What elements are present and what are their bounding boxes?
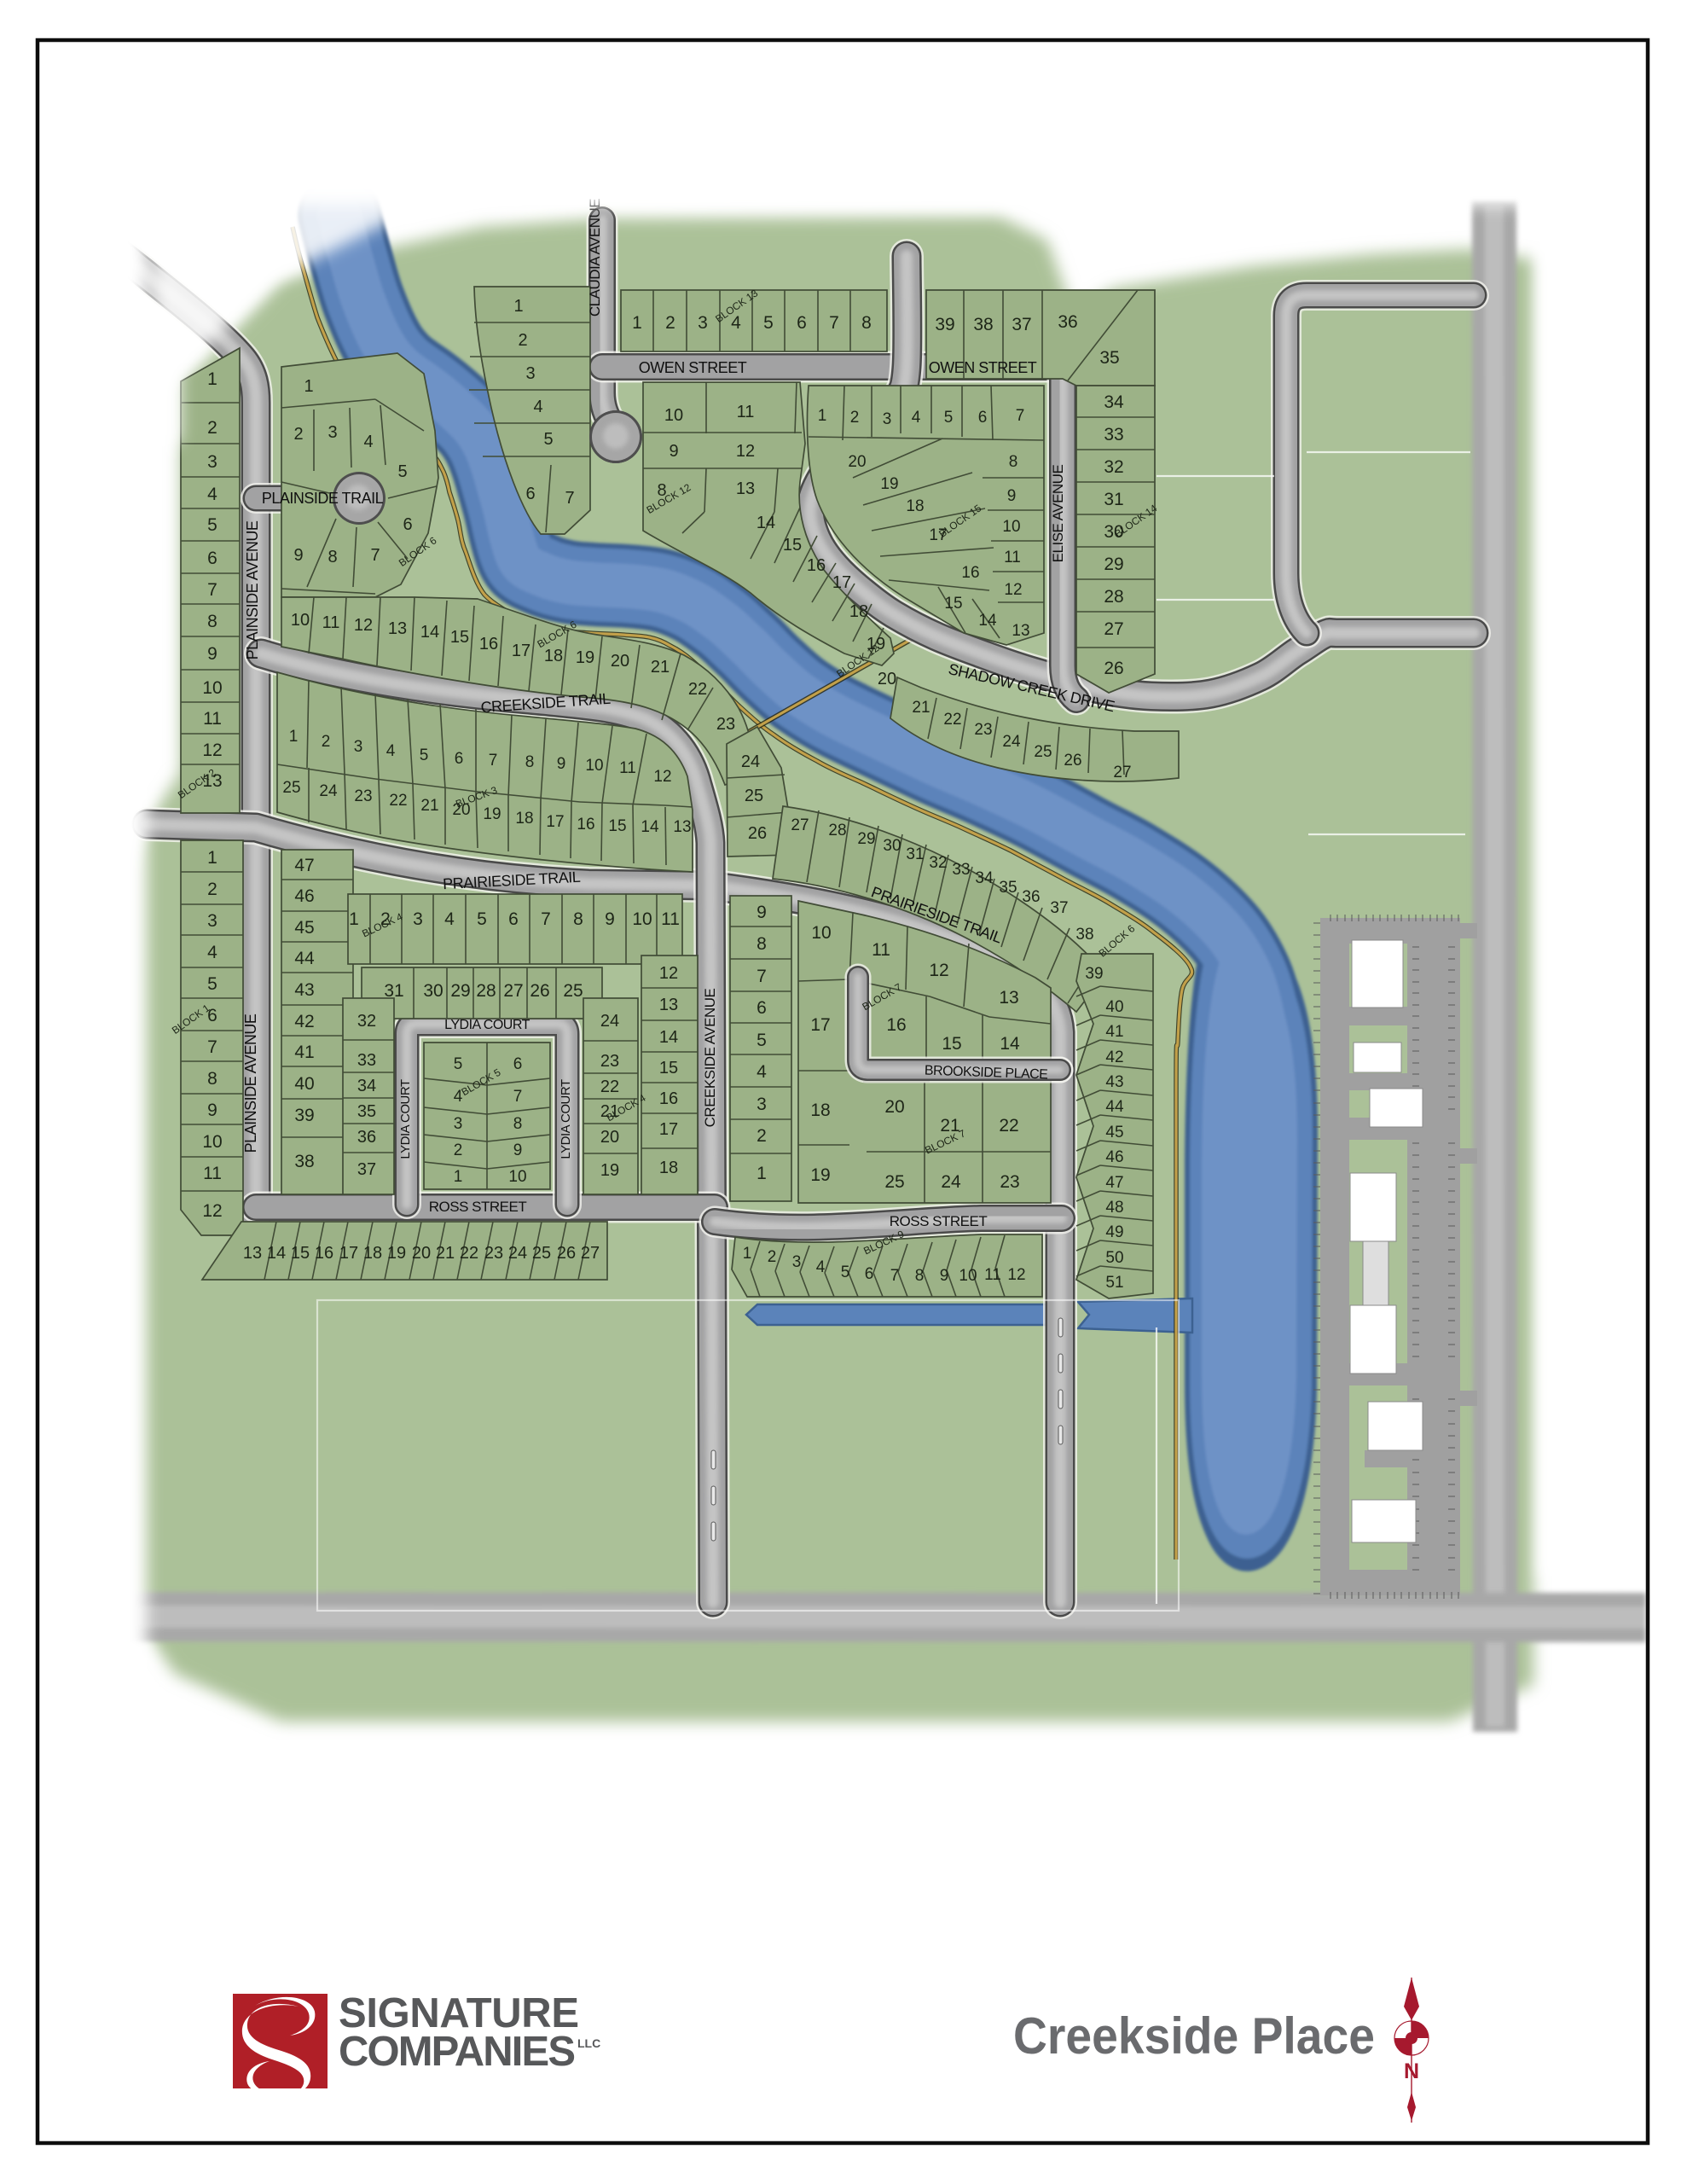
svg-text:1: 1 — [743, 1245, 752, 1263]
svg-text:6: 6 — [513, 1055, 523, 1073]
svg-text:19: 19 — [483, 805, 501, 823]
svg-text:6: 6 — [508, 909, 519, 929]
svg-text:5: 5 — [420, 746, 429, 764]
svg-text:18: 18 — [363, 1244, 382, 1263]
svg-text:11: 11 — [872, 940, 890, 960]
svg-text:2: 2 — [850, 409, 860, 427]
svg-text:35: 35 — [357, 1102, 376, 1121]
svg-text:10: 10 — [202, 1132, 222, 1152]
svg-text:40: 40 — [1105, 998, 1123, 1016]
svg-text:15: 15 — [659, 1059, 678, 1077]
svg-text:17: 17 — [512, 642, 530, 660]
svg-text:27: 27 — [503, 981, 523, 1001]
svg-text:10: 10 — [508, 1168, 526, 1186]
svg-text:10: 10 — [632, 909, 652, 929]
svg-text:7: 7 — [370, 546, 380, 565]
svg-text:14: 14 — [1000, 1034, 1020, 1054]
svg-text:39: 39 — [1085, 965, 1103, 983]
svg-text:8: 8 — [328, 548, 337, 566]
svg-text:1: 1 — [454, 1168, 463, 1186]
svg-text:12: 12 — [736, 442, 755, 461]
svg-text:3: 3 — [454, 1115, 463, 1133]
svg-text:47: 47 — [1105, 1174, 1123, 1192]
svg-text:12: 12 — [202, 741, 222, 760]
svg-text:1: 1 — [349, 909, 359, 929]
svg-text:22: 22 — [460, 1244, 478, 1263]
svg-text:27: 27 — [1113, 764, 1131, 781]
svg-text:9: 9 — [293, 546, 303, 565]
svg-text:4: 4 — [207, 485, 217, 504]
svg-text:11: 11 — [322, 613, 340, 632]
svg-text:19: 19 — [600, 1161, 619, 1180]
svg-text:44: 44 — [294, 949, 315, 968]
svg-text:3: 3 — [413, 909, 423, 929]
svg-text:10: 10 — [959, 1267, 977, 1285]
svg-text:25: 25 — [1034, 743, 1052, 761]
svg-text:7: 7 — [829, 313, 839, 333]
svg-text:39: 39 — [935, 315, 954, 334]
svg-text:17: 17 — [832, 573, 851, 592]
svg-text:16: 16 — [479, 635, 498, 653]
svg-text:6: 6 — [525, 485, 535, 503]
svg-text:35: 35 — [999, 879, 1017, 897]
svg-text:11: 11 — [203, 1164, 222, 1183]
svg-text:14: 14 — [757, 514, 775, 532]
svg-text:ELISE AVENUE: ELISE AVENUE — [1050, 465, 1066, 563]
svg-text:19: 19 — [810, 1165, 830, 1185]
svg-text:10: 10 — [664, 406, 683, 425]
svg-text:4: 4 — [533, 398, 542, 416]
svg-text:41: 41 — [294, 1043, 314, 1062]
svg-text:1: 1 — [304, 377, 313, 396]
svg-text:31: 31 — [1104, 490, 1123, 509]
svg-text:PLAINSIDE AVENUE: PLAINSIDE AVENUE — [244, 520, 261, 659]
svg-text:4: 4 — [386, 742, 396, 760]
svg-text:14: 14 — [978, 612, 997, 630]
svg-text:37: 37 — [1012, 315, 1031, 334]
svg-text:15: 15 — [942, 1034, 961, 1054]
svg-text:3: 3 — [207, 911, 217, 931]
svg-text:37: 37 — [1050, 899, 1068, 917]
svg-text:9: 9 — [557, 755, 566, 773]
svg-text:13: 13 — [736, 479, 755, 498]
svg-text:1: 1 — [632, 313, 642, 333]
svg-text:2: 2 — [293, 425, 303, 444]
svg-text:2: 2 — [207, 418, 217, 438]
svg-text:7: 7 — [757, 967, 767, 986]
svg-text:45: 45 — [294, 918, 314, 938]
svg-text:36: 36 — [1058, 312, 1077, 332]
svg-text:46: 46 — [1105, 1148, 1123, 1166]
svg-text:34: 34 — [1104, 392, 1124, 412]
svg-text:10: 10 — [811, 923, 831, 943]
svg-text:2: 2 — [518, 331, 527, 350]
svg-text:29: 29 — [450, 981, 470, 1001]
svg-text:12: 12 — [202, 1201, 222, 1221]
svg-text:2: 2 — [454, 1141, 463, 1159]
svg-text:20: 20 — [412, 1244, 431, 1263]
svg-text:23: 23 — [1000, 1172, 1019, 1192]
svg-text:23: 23 — [484, 1244, 503, 1263]
svg-text:1: 1 — [289, 728, 299, 746]
svg-text:12: 12 — [659, 964, 678, 983]
svg-text:38: 38 — [294, 1152, 314, 1171]
svg-text:32: 32 — [929, 854, 947, 872]
svg-text:25: 25 — [563, 981, 583, 1001]
svg-text:17: 17 — [810, 1015, 830, 1035]
svg-text:6: 6 — [797, 313, 807, 333]
svg-text:25: 25 — [532, 1244, 551, 1263]
svg-text:20: 20 — [884, 1097, 904, 1117]
svg-text:19: 19 — [387, 1244, 406, 1263]
svg-text:29: 29 — [1104, 555, 1123, 574]
svg-text:8: 8 — [861, 313, 872, 333]
svg-text:9: 9 — [940, 1267, 949, 1285]
svg-text:1: 1 — [757, 1164, 767, 1183]
svg-text:18: 18 — [849, 602, 868, 621]
svg-text:19: 19 — [576, 648, 594, 667]
svg-text:45: 45 — [1105, 1124, 1123, 1141]
svg-text:27: 27 — [791, 816, 809, 834]
svg-text:35: 35 — [1099, 348, 1119, 368]
svg-text:9: 9 — [669, 442, 678, 461]
svg-text:2: 2 — [665, 313, 675, 333]
svg-text:49: 49 — [1105, 1223, 1123, 1241]
svg-text:26: 26 — [748, 824, 767, 843]
svg-text:51: 51 — [1105, 1274, 1123, 1292]
svg-text:LYDIA COURT: LYDIA COURT — [444, 1018, 530, 1032]
svg-text:18: 18 — [515, 810, 533, 828]
svg-text:9: 9 — [207, 644, 217, 664]
svg-text:6: 6 — [207, 549, 217, 568]
svg-text:8: 8 — [513, 1115, 523, 1133]
svg-text:21: 21 — [436, 1244, 455, 1263]
svg-text:16: 16 — [807, 556, 826, 575]
svg-text:8: 8 — [757, 934, 767, 954]
svg-text:PLAINSIDE AVENUE: PLAINSIDE AVENUE — [242, 1014, 259, 1153]
svg-text:3: 3 — [698, 313, 708, 333]
svg-text:11: 11 — [619, 759, 636, 777]
svg-text:42: 42 — [1105, 1048, 1123, 1066]
svg-text:20: 20 — [600, 1128, 619, 1147]
svg-text:5: 5 — [763, 313, 774, 333]
svg-text:30: 30 — [883, 837, 901, 855]
svg-text:24: 24 — [319, 782, 338, 800]
svg-text:10: 10 — [585, 757, 603, 775]
svg-text:36: 36 — [357, 1128, 376, 1147]
svg-text:PLAINSIDE TRAIL: PLAINSIDE TRAIL — [262, 490, 384, 507]
svg-text:28: 28 — [1104, 587, 1123, 607]
svg-text:19: 19 — [880, 475, 898, 493]
svg-text:21: 21 — [420, 797, 438, 815]
svg-text:9: 9 — [605, 909, 615, 929]
svg-text:24: 24 — [600, 1012, 619, 1031]
svg-text:10: 10 — [291, 611, 310, 630]
svg-text:7: 7 — [1016, 407, 1025, 425]
svg-text:2: 2 — [757, 1126, 767, 1146]
svg-text:15: 15 — [783, 536, 802, 555]
svg-text:3: 3 — [757, 1095, 767, 1114]
svg-text:CREEKSIDE AVENUE: CREEKSIDE AVENUE — [702, 989, 718, 1128]
svg-text:32: 32 — [1104, 457, 1123, 477]
svg-text:28: 28 — [476, 981, 496, 1001]
svg-text:47: 47 — [294, 856, 314, 875]
svg-text:4: 4 — [444, 909, 455, 929]
svg-text:16: 16 — [315, 1244, 333, 1263]
svg-text:16: 16 — [886, 1015, 906, 1035]
svg-text:22: 22 — [688, 680, 707, 699]
svg-text:15: 15 — [450, 628, 469, 647]
svg-text:5: 5 — [757, 1031, 767, 1050]
svg-text:26: 26 — [557, 1244, 576, 1263]
svg-text:22: 22 — [943, 711, 961, 729]
svg-text:13: 13 — [673, 818, 691, 836]
svg-text:9: 9 — [757, 903, 767, 922]
svg-text:38: 38 — [1075, 926, 1093, 944]
svg-text:33: 33 — [357, 1051, 376, 1070]
svg-text:N: N — [1404, 2059, 1419, 2083]
svg-text:10: 10 — [202, 678, 222, 698]
svg-text:40: 40 — [294, 1074, 314, 1094]
svg-text:8: 8 — [1009, 453, 1018, 471]
svg-text:10: 10 — [1002, 518, 1020, 536]
svg-text:5: 5 — [454, 1055, 463, 1073]
svg-text:20: 20 — [848, 453, 866, 471]
svg-text:9: 9 — [1007, 487, 1017, 505]
svg-text:14: 14 — [420, 623, 439, 642]
svg-text:14: 14 — [641, 818, 659, 836]
svg-text:38: 38 — [973, 315, 993, 334]
svg-text:16: 16 — [659, 1089, 678, 1108]
svg-text:ROSS STREET: ROSS STREET — [429, 1199, 527, 1215]
svg-text:5: 5 — [397, 462, 407, 481]
svg-text:26: 26 — [530, 981, 549, 1001]
svg-text:7: 7 — [541, 909, 551, 929]
svg-text:4: 4 — [816, 1258, 826, 1276]
svg-text:3: 3 — [525, 364, 535, 383]
svg-text:1: 1 — [513, 297, 523, 316]
svg-text:COMPANIES: COMPANIES — [339, 2029, 575, 2075]
svg-text:23: 23 — [600, 1052, 619, 1071]
svg-text:5: 5 — [543, 430, 553, 449]
svg-text:27: 27 — [581, 1244, 600, 1263]
svg-text:25: 25 — [884, 1172, 904, 1192]
svg-text:12: 12 — [1007, 1266, 1025, 1284]
svg-text:23: 23 — [974, 721, 992, 739]
svg-text:6: 6 — [757, 998, 767, 1018]
svg-text:7: 7 — [207, 1037, 217, 1057]
svg-text:7: 7 — [489, 752, 498, 770]
svg-text:3: 3 — [883, 410, 892, 428]
svg-text:20: 20 — [878, 670, 896, 688]
svg-text:11: 11 — [737, 403, 755, 421]
svg-text:39: 39 — [294, 1106, 314, 1125]
svg-text:43: 43 — [294, 980, 314, 1000]
svg-text:22: 22 — [389, 792, 407, 810]
svg-text:18: 18 — [906, 497, 924, 515]
svg-text:32: 32 — [357, 1012, 376, 1031]
svg-text:1: 1 — [207, 848, 217, 868]
svg-text:OWEN STREET: OWEN STREET — [929, 359, 1037, 376]
svg-text:9: 9 — [207, 1101, 217, 1120]
svg-text:13: 13 — [999, 988, 1018, 1008]
svg-text:6: 6 — [865, 1265, 874, 1283]
svg-text:7: 7 — [513, 1088, 523, 1106]
svg-text:1: 1 — [207, 369, 217, 389]
svg-text:OWEN STREET: OWEN STREET — [639, 359, 747, 376]
svg-text:8: 8 — [525, 753, 535, 771]
svg-text:24: 24 — [1002, 733, 1021, 751]
svg-text:8: 8 — [915, 1267, 925, 1285]
svg-text:37: 37 — [357, 1160, 376, 1179]
svg-text:26: 26 — [1104, 659, 1123, 678]
svg-text:26: 26 — [1064, 752, 1081, 770]
svg-text:15: 15 — [944, 595, 962, 613]
svg-text:11: 11 — [203, 709, 222, 729]
svg-text:4: 4 — [207, 943, 217, 962]
svg-text:50: 50 — [1105, 1249, 1123, 1267]
svg-text:7: 7 — [207, 580, 217, 600]
svg-text:1: 1 — [818, 407, 827, 425]
svg-text:3: 3 — [792, 1253, 802, 1271]
svg-text:5: 5 — [841, 1263, 850, 1281]
svg-text:CLAUDIA AVENUE: CLAUDIA AVENUE — [587, 199, 603, 317]
svg-text:12: 12 — [1004, 581, 1022, 599]
svg-text:23: 23 — [354, 787, 372, 805]
svg-text:6: 6 — [455, 750, 464, 768]
svg-text:3: 3 — [328, 423, 337, 442]
svg-text:30: 30 — [423, 981, 443, 1001]
svg-text:28: 28 — [828, 822, 846, 839]
svg-text:24: 24 — [508, 1244, 527, 1263]
svg-text:13: 13 — [243, 1244, 262, 1263]
svg-text:44: 44 — [1105, 1098, 1124, 1116]
svg-text:6: 6 — [978, 409, 988, 427]
svg-text:24: 24 — [741, 752, 760, 771]
svg-text:20: 20 — [611, 652, 629, 671]
svg-text:8: 8 — [207, 1069, 217, 1089]
svg-text:36: 36 — [1022, 888, 1040, 906]
svg-text:22: 22 — [600, 1077, 619, 1096]
svg-text:3: 3 — [354, 738, 363, 756]
svg-text:11: 11 — [661, 909, 680, 929]
svg-text:12: 12 — [653, 768, 671, 786]
svg-text:2: 2 — [322, 733, 331, 751]
svg-text:23: 23 — [716, 715, 735, 734]
svg-text:18: 18 — [810, 1101, 830, 1120]
svg-text:7: 7 — [565, 489, 574, 508]
svg-text:6: 6 — [403, 515, 412, 534]
svg-text:12: 12 — [929, 961, 948, 980]
svg-text:33: 33 — [1104, 425, 1123, 444]
svg-text:13: 13 — [388, 619, 407, 638]
svg-text:8: 8 — [573, 909, 583, 929]
svg-text:48: 48 — [1105, 1199, 1123, 1217]
svg-text:22: 22 — [999, 1116, 1018, 1136]
svg-text:33: 33 — [952, 861, 970, 879]
svg-text:LLC: LLC — [577, 2036, 600, 2050]
svg-text:17: 17 — [546, 813, 564, 831]
svg-text:15: 15 — [291, 1244, 310, 1263]
svg-text:11: 11 — [1004, 549, 1021, 566]
svg-text:13: 13 — [659, 996, 678, 1014]
svg-text:46: 46 — [294, 886, 314, 906]
svg-text:Creekside Place: Creekside Place — [1013, 2007, 1375, 2065]
svg-text:12: 12 — [354, 616, 373, 635]
svg-text:27: 27 — [1104, 619, 1123, 639]
svg-text:43: 43 — [1105, 1073, 1123, 1091]
svg-text:42: 42 — [294, 1012, 314, 1031]
svg-text:31: 31 — [906, 845, 924, 863]
svg-text:21: 21 — [912, 699, 930, 717]
svg-text:18: 18 — [659, 1159, 678, 1177]
svg-text:41: 41 — [1105, 1023, 1123, 1041]
svg-text:5: 5 — [477, 909, 487, 929]
svg-text:2: 2 — [207, 880, 217, 899]
svg-text:11: 11 — [984, 1266, 1001, 1284]
svg-text:8: 8 — [207, 612, 217, 631]
svg-text:3: 3 — [207, 452, 217, 472]
svg-text:4: 4 — [363, 433, 373, 451]
svg-text:17: 17 — [659, 1120, 678, 1139]
svg-text:29: 29 — [857, 830, 875, 848]
svg-text:16: 16 — [961, 564, 979, 582]
svg-text:15: 15 — [608, 817, 626, 835]
svg-text:34: 34 — [975, 869, 994, 887]
svg-text:25: 25 — [745, 787, 763, 805]
svg-text:4: 4 — [757, 1062, 767, 1082]
svg-text:14: 14 — [659, 1028, 678, 1047]
svg-text:5: 5 — [207, 974, 217, 994]
svg-text:34: 34 — [357, 1077, 376, 1095]
svg-text:18: 18 — [544, 647, 563, 665]
svg-text:4: 4 — [912, 409, 921, 427]
svg-text:LYDIA COURT: LYDIA COURT — [559, 1079, 573, 1159]
svg-text:5: 5 — [207, 515, 217, 535]
svg-text:16: 16 — [577, 816, 594, 834]
svg-text:5: 5 — [944, 409, 954, 427]
svg-text:21: 21 — [651, 658, 670, 677]
svg-text:ROSS STREET: ROSS STREET — [890, 1213, 988, 1229]
svg-text:9: 9 — [513, 1141, 523, 1159]
svg-text:LYDIA COURT: LYDIA COURT — [398, 1079, 413, 1159]
svg-text:24: 24 — [941, 1172, 961, 1192]
svg-text:13: 13 — [1012, 622, 1029, 640]
svg-text:17: 17 — [339, 1244, 358, 1263]
svg-text:14: 14 — [267, 1244, 286, 1263]
svg-text:2: 2 — [768, 1248, 777, 1266]
svg-text:25: 25 — [282, 779, 300, 797]
svg-text:7: 7 — [890, 1267, 900, 1285]
